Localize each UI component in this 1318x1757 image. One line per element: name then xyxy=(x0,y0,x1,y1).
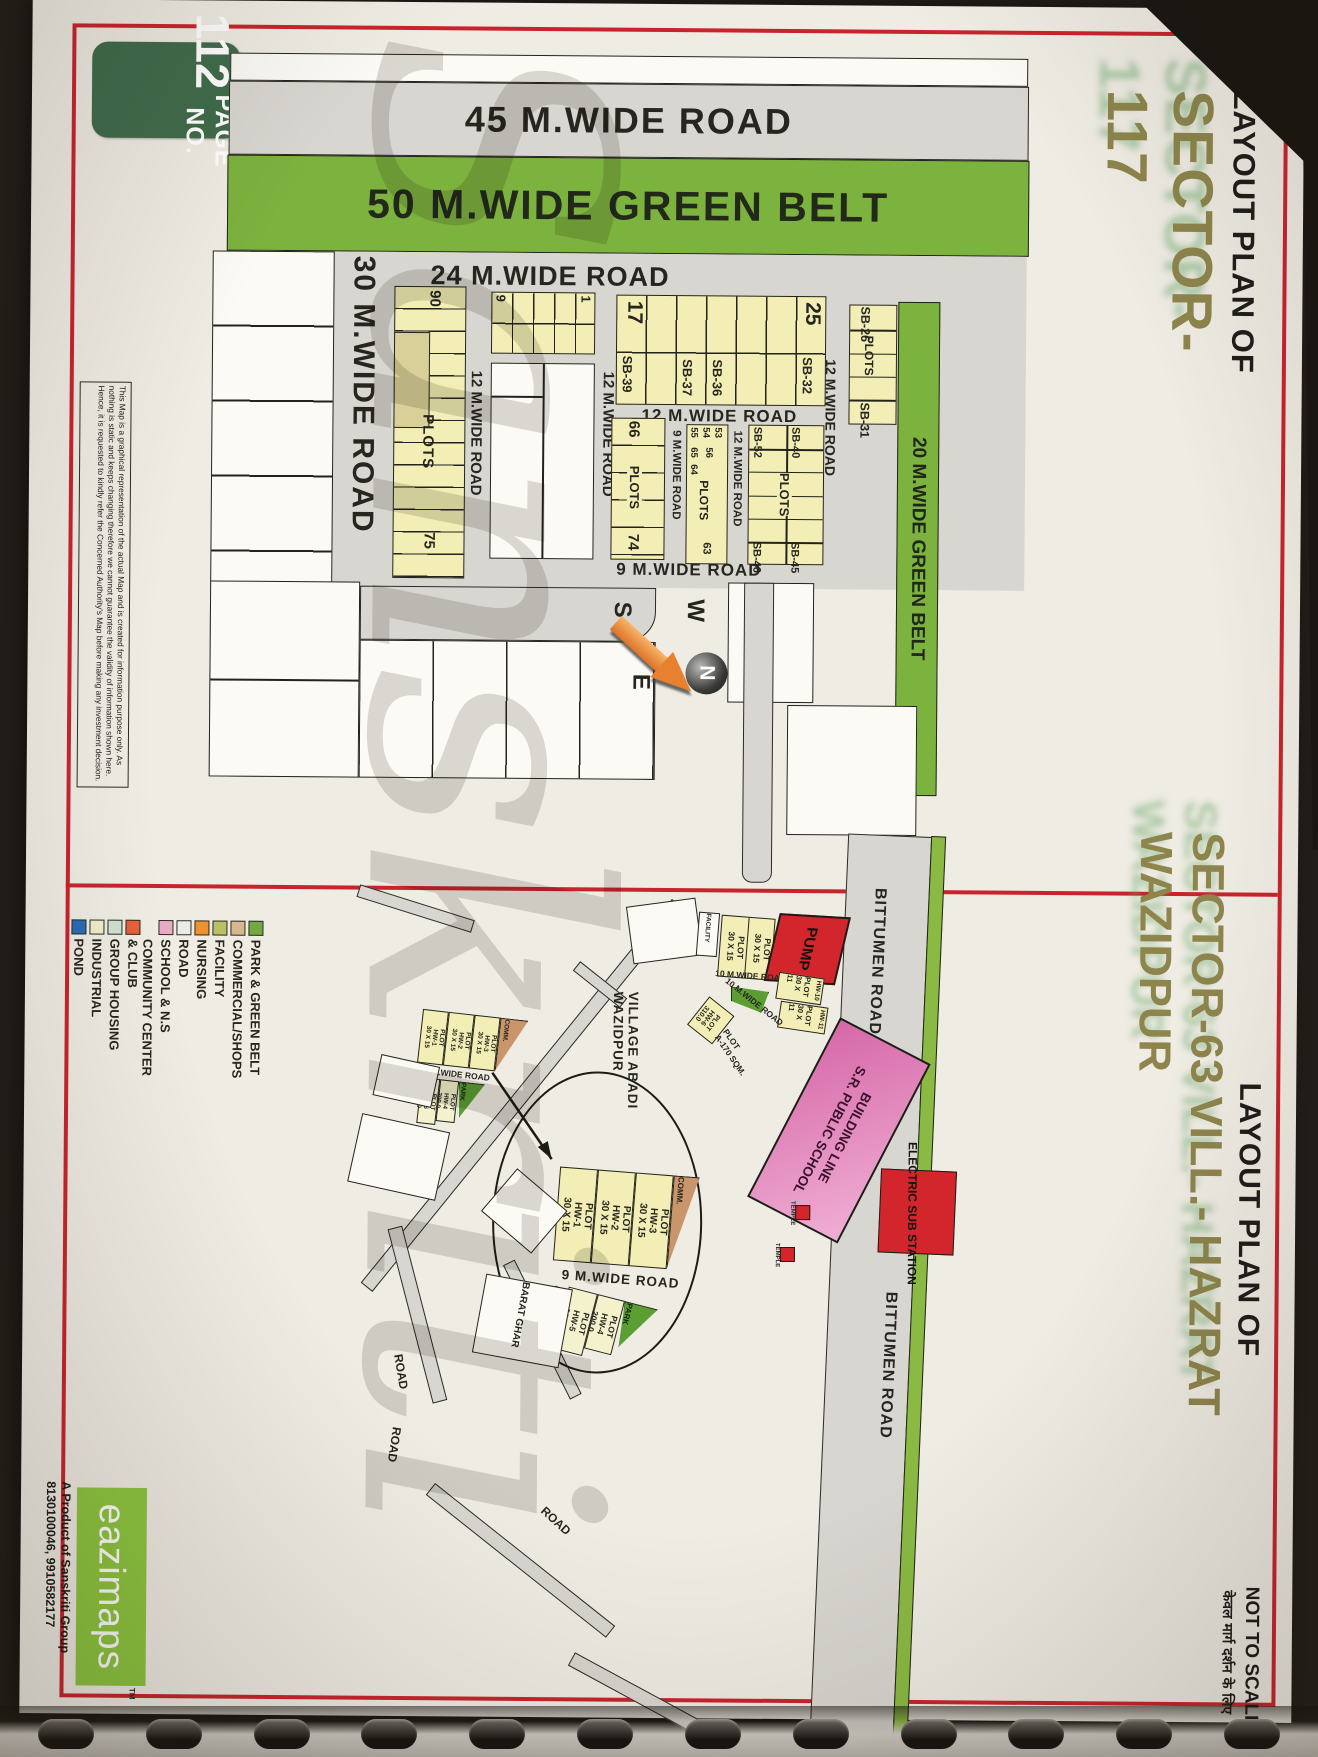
compass-north-ball: N xyxy=(685,652,727,694)
plot-9: 9 xyxy=(493,295,508,302)
legend-swatch-community-center xyxy=(125,920,140,935)
plots-word-4: PLOTS xyxy=(697,480,711,520)
legend-swatch-industrial xyxy=(89,920,104,935)
legend-item: POND xyxy=(69,919,87,1290)
plot-hw11: PLOT 30 X 11 HW-11 xyxy=(777,1001,828,1035)
legend: POND INDUSTRIAL GROUP HOUSING COMMUNITY … xyxy=(69,919,264,1291)
spiral-coils xyxy=(0,1706,1318,1749)
plot-sb37: SB-37 xyxy=(680,359,695,396)
legend-swatch-group-housing xyxy=(107,920,122,935)
legend-item: COMMUNITY CENTER & CLUB xyxy=(123,920,156,1291)
plots-word-5: PLOTS xyxy=(777,473,792,516)
hw11-label: HW-11 xyxy=(816,1009,826,1030)
plot-sb36: SB-36 xyxy=(710,359,725,396)
road-30m-label: 30 M.WIDE ROAD xyxy=(345,256,381,536)
page-number-badge: PAGE NO. 112 xyxy=(92,42,241,139)
plot-sb52: SB-52 xyxy=(751,427,763,458)
legend-item: FACILITY xyxy=(210,920,228,1291)
publisher-logo-text: eazimaps xyxy=(90,1488,134,1686)
plot-sb31: SB-31 xyxy=(857,403,871,439)
legend-swatch-road xyxy=(176,920,191,935)
legend-item: NURSING xyxy=(192,920,210,1291)
stub-road xyxy=(742,583,774,883)
plot-sb45: SB-45 xyxy=(788,542,800,573)
plot-25: 25 xyxy=(800,302,824,326)
spiral-coil-icon xyxy=(1224,1719,1280,1749)
disclaimer-box: This Map is a graphical representation o… xyxy=(77,381,132,787)
sector117-title-text: SECTOR-117 xyxy=(1091,89,1226,420)
temple-label-2: TEMPLE xyxy=(774,1243,780,1267)
spiral-coil-icon xyxy=(793,1719,849,1749)
legend-swatch-nursing xyxy=(194,920,209,935)
page-badge-label: PAGE NO. xyxy=(91,88,240,168)
plot-53: 53 xyxy=(712,427,723,438)
plots-word-1: PLOTS xyxy=(419,414,436,469)
blank-block-d xyxy=(786,705,917,836)
spiral-coil-icon xyxy=(146,1719,202,1749)
spiral-coil-icon xyxy=(38,1719,94,1749)
hw10-label: HW-10 xyxy=(812,980,822,1001)
legend-swatch-school xyxy=(158,920,173,935)
spiral-coil-icon xyxy=(1116,1719,1172,1749)
road-45m-label: 45 M.WIDE ROAD xyxy=(465,98,793,142)
plot-sb40: SB-40 xyxy=(789,427,801,458)
sector63-title-prefix: LAYOUT PLAN OF xyxy=(1228,832,1268,1622)
blank-block-a xyxy=(209,580,361,777)
legend-swatch-park xyxy=(248,921,263,936)
legend-item: COMMERCIAL/SHOPS xyxy=(228,921,246,1292)
sector117-title: LAYOUT PLAN OF SECTOR-117 xyxy=(1091,89,1262,420)
road-12m-label-1: 12 M.WIDE ROAD xyxy=(466,370,485,585)
legend-swatch-commercial xyxy=(230,921,245,936)
road-24m-label: 24 M.WIDE ROAD xyxy=(430,260,750,294)
legend-item: PARK & GREEN BELT xyxy=(246,921,264,1292)
spiral-coil-icon xyxy=(901,1719,957,1749)
village-blank-shape xyxy=(626,898,703,965)
road-45m-band: 45 M.WIDE ROAD xyxy=(229,81,1030,161)
photo-background: PAGE NO. 112 This Map is a graphical rep… xyxy=(0,0,1318,1757)
electric-substation-label: ELECTRIC SUB STATION xyxy=(905,1142,920,1302)
plot-17: 17 xyxy=(622,301,646,325)
green-belt-50m-band: 50 M.WIDE GREEN BELT xyxy=(227,155,1030,257)
blank-block-b xyxy=(359,640,656,780)
legend-swatch-facility xyxy=(212,920,227,935)
temple-marker-icon xyxy=(780,1247,795,1262)
compass-north-label: N xyxy=(694,652,718,694)
plots-word-3: PLOTS xyxy=(627,466,642,509)
pump-label: PUMP xyxy=(791,917,823,982)
publisher-logo: eazimaps xyxy=(76,1487,148,1686)
plot-56: 56 xyxy=(703,447,714,458)
barat-ghar-building: BARAT GHAR xyxy=(472,1274,573,1369)
bittumen-road-label-1: BITTUMEN ROAD xyxy=(865,887,889,1035)
road-9m-large-label: 9 M.WIDE ROAD xyxy=(561,1267,692,1292)
spiral-coil-icon xyxy=(361,1719,417,1749)
legend-item: INDUSTRIAL xyxy=(87,920,105,1291)
white-block-center xyxy=(489,363,595,560)
temple-label-1: TEMPLE xyxy=(789,1201,795,1225)
facility-cell: FACILITY xyxy=(696,912,720,957)
bittumen-road-label-2: BITTUMEN ROAD xyxy=(875,1291,899,1439)
publisher-lines: A Product of Sanskriti Group 8130100046,… xyxy=(41,1481,73,1693)
sector63-title: LAYOUT PLAN OF SECTOR-63 VILL.- HAZRAT W… xyxy=(1124,832,1268,1623)
legend-item: ROAD xyxy=(174,920,192,1291)
plot-90: 90 xyxy=(426,290,443,307)
plot-64: 64 xyxy=(688,464,699,475)
facility-label: FACILITY xyxy=(697,913,712,956)
temple-marker-icon xyxy=(795,1205,810,1220)
plots-word-2: PLOTS xyxy=(862,336,876,376)
plot-55: 55 xyxy=(688,427,699,438)
map-page: PAGE NO. 112 This Map is a graphical rep… xyxy=(19,0,1304,1723)
plot-66: 66 xyxy=(625,421,642,438)
spiral-coil-icon xyxy=(254,1719,310,1749)
legend-swatch-pond xyxy=(71,919,86,934)
compass-west-label: W xyxy=(681,599,709,622)
green-belt-50m-label: 50 M.WIDE GREEN BELT xyxy=(367,181,890,231)
plot-65: 65 xyxy=(688,447,699,458)
publisher-tm: TM xyxy=(127,1688,136,1700)
sector63-title-text: SECTOR-63 VILL.- HAZRAT WAZIDPUR xyxy=(1124,832,1234,1623)
binding-strip xyxy=(0,1706,1318,1757)
legend-item: SCHOOL & N.S xyxy=(156,920,174,1291)
plot-63: 63 xyxy=(700,542,712,554)
detail-arrow-icon xyxy=(473,1063,584,1184)
spiral-coil-icon xyxy=(1008,1719,1064,1749)
hw-group-large: PLOT HW-1 30 X 15 PLOT HW-2 30 X 15 PLOT… xyxy=(546,1167,700,1360)
sector117-title-prefix: LAYOUT PLAN OF xyxy=(1223,90,1262,420)
spiral-coil-icon xyxy=(685,1719,741,1749)
plot-54: 54 xyxy=(700,427,711,438)
plot-sb32: SB-32 xyxy=(800,357,815,394)
road-9m-label-h: 9 M.WIDE ROAD xyxy=(616,560,761,581)
plot-75: 75 xyxy=(420,532,437,549)
plot-sb39: SB-39 xyxy=(620,356,635,393)
road-9m-label-v: 9 M.WIDE ROAD xyxy=(669,430,682,558)
plot-1: 1 xyxy=(578,295,593,302)
page-badge-number: 112 xyxy=(92,12,241,89)
legend-item: GROUP HOUSING xyxy=(105,920,123,1291)
spiral-coil-icon xyxy=(577,1719,633,1749)
plot-74: 74 xyxy=(624,534,641,551)
road-12m-label-4: 12 M.WIDE ROAD xyxy=(730,431,743,563)
spiral-coil-icon xyxy=(469,1719,525,1749)
